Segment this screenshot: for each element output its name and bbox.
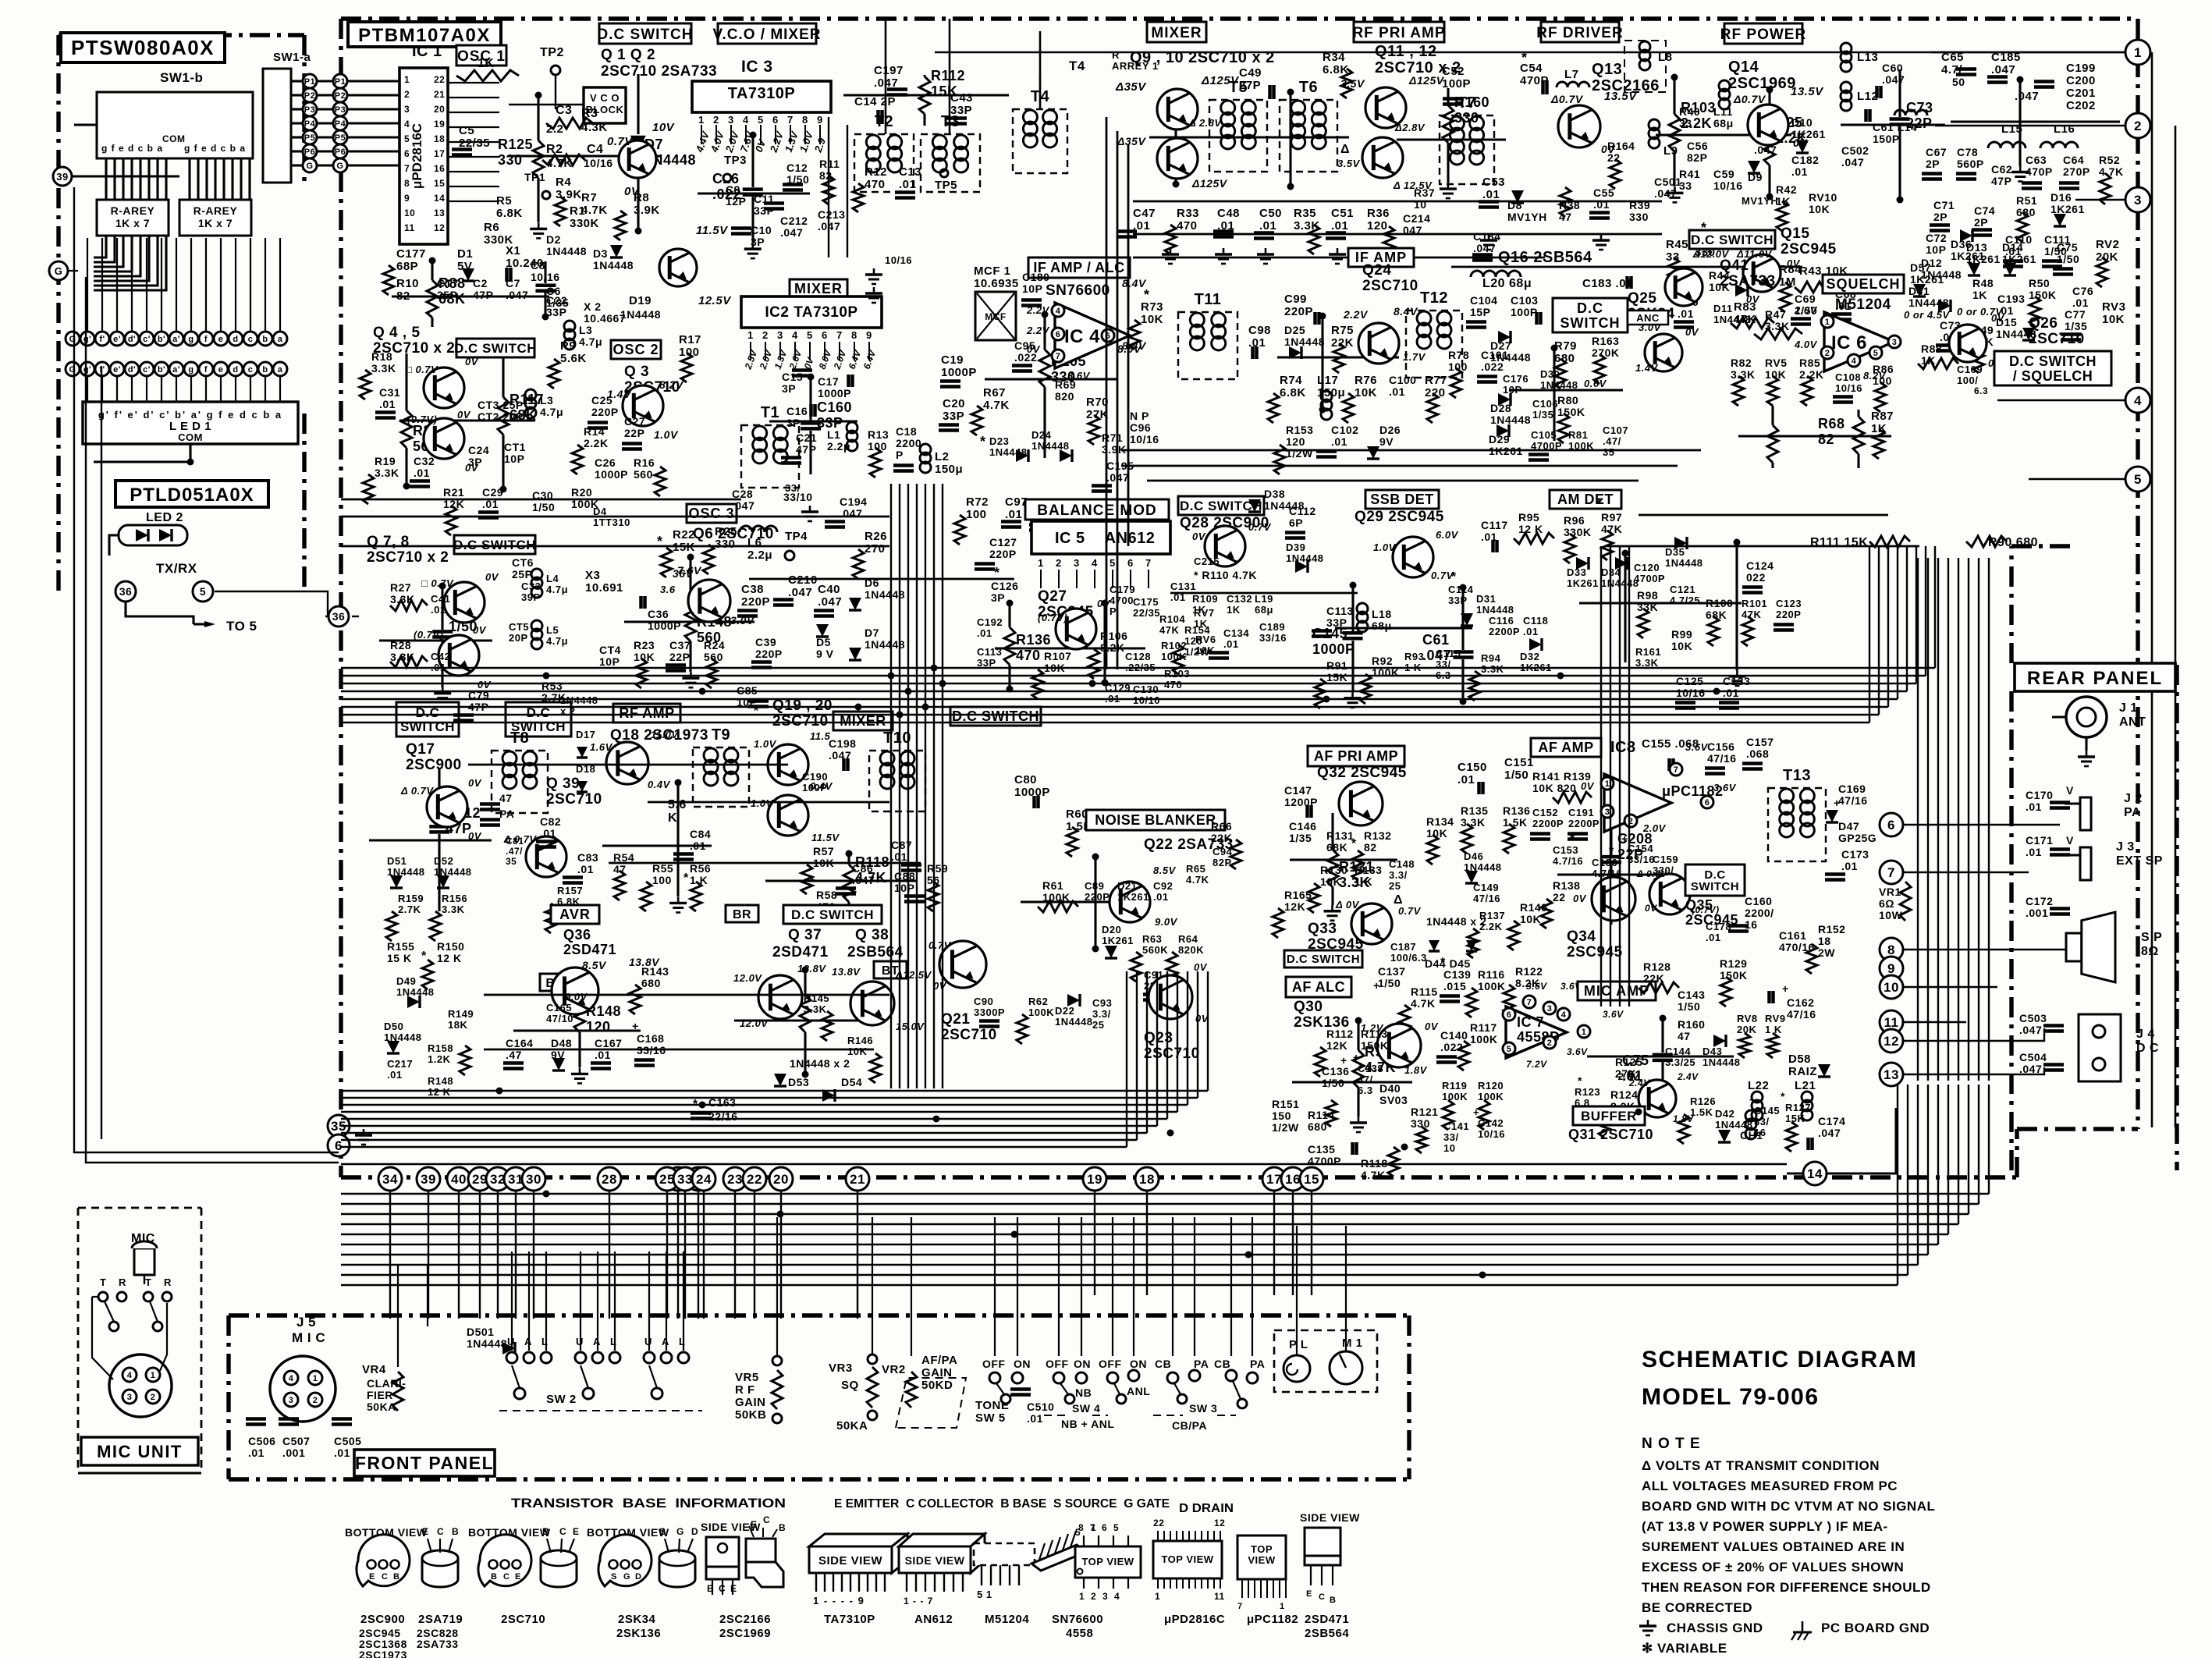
svg-text:R25: R25	[715, 525, 737, 538]
svg-text:4: 4	[1852, 357, 1857, 366]
svg-text:3P: 3P	[991, 591, 1005, 604]
svg-text:C113: C113	[1326, 605, 1354, 617]
svg-text:1.4V: 1.4V	[1635, 362, 1659, 374]
svg-text:50: 50	[1952, 76, 1965, 88]
svg-text:R120: R120	[1478, 1080, 1504, 1092]
svg-text:C60: C60	[1882, 62, 1903, 74]
svg-text:25: 25	[1389, 880, 1401, 892]
svg-text:.047: .047	[2019, 1024, 2042, 1036]
svg-text:R107: R107	[1044, 650, 1071, 662]
svg-text:RF POWER: RF POWER	[1720, 27, 1806, 43]
svg-text:82: 82	[396, 289, 410, 303]
svg-text:Q14: Q14	[1728, 59, 1759, 76]
svg-text:R13: R13	[868, 428, 889, 441]
svg-text:150K: 150K	[1557, 406, 1585, 418]
svg-text:C135: C135	[1308, 1143, 1335, 1156]
svg-text:D.C SWITCH: D.C SWITCH	[453, 538, 536, 552]
svg-text:C14 2P: C14 2P	[854, 95, 896, 108]
svg-text:0V: 0V	[1991, 312, 2005, 324]
svg-text:220P: 220P	[591, 406, 619, 418]
svg-text:R97: R97	[1601, 511, 1622, 524]
svg-text:D16: D16	[2050, 191, 2072, 204]
svg-text:C182: C182	[1791, 154, 1819, 166]
svg-text:.01: .01	[1481, 531, 1497, 543]
svg-text:.047: .047	[788, 586, 812, 599]
svg-text:47K: 47K	[1159, 624, 1179, 636]
svg-text:4700P: 4700P	[1634, 573, 1665, 584]
svg-text:c: c	[248, 365, 254, 375]
svg-text:R155: R155	[387, 940, 414, 953]
svg-text:C115: C115	[1436, 648, 1461, 659]
svg-text:.01: .01	[2005, 245, 2022, 257]
svg-text:P4: P4	[335, 119, 346, 129]
svg-text:Q23: Q23	[1144, 1030, 1173, 1046]
svg-text:330: 330	[1629, 211, 1649, 223]
svg-text:VR2: VR2	[882, 1363, 906, 1376]
svg-text:R128: R128	[1643, 960, 1671, 973]
svg-text:C18: C18	[896, 425, 917, 438]
svg-text:GAIN: GAIN	[735, 1396, 766, 1409]
svg-text:B: B	[542, 1526, 549, 1537]
svg-text:2SC710: 2SC710	[1144, 1046, 1200, 1062]
svg-text:C217: C217	[387, 1058, 413, 1070]
svg-text:L22: L22	[1748, 1079, 1769, 1092]
svg-text:R61: R61	[1042, 879, 1063, 892]
svg-text:8.2V: 8.2V	[659, 378, 684, 391]
svg-text:D30: D30	[1540, 368, 1560, 380]
svg-text:SV03: SV03	[1379, 1094, 1408, 1106]
svg-text:50KD: 50KD	[921, 1379, 953, 1392]
svg-text:C19: C19	[941, 353, 964, 367]
svg-text:D11: D11	[1713, 303, 1733, 314]
svg-text:C109: C109	[1957, 364, 1983, 375]
svg-text:L3: L3	[579, 324, 592, 336]
svg-text:0V: 0V	[1194, 961, 1208, 973]
svg-text:27P: 27P	[1239, 79, 1261, 92]
svg-text:D17: D17	[576, 729, 595, 740]
svg-text:E: E	[369, 1572, 375, 1582]
svg-text:Q34: Q34	[1567, 928, 1596, 945]
svg-text:.47/: .47/	[506, 846, 523, 857]
svg-text:R5: R5	[496, 194, 512, 208]
svg-text:C174: C174	[1818, 1115, 1845, 1127]
svg-text:R80: R80	[1557, 394, 1578, 407]
svg-text:C112: C112	[1289, 505, 1316, 517]
svg-text:CT4: CT4	[599, 644, 621, 656]
svg-text:D49: D49	[396, 975, 416, 987]
svg-text:R100: R100	[1706, 597, 1733, 609]
svg-text:C170: C170	[2026, 789, 2053, 801]
svg-text:2.2μ: 2.2μ	[747, 549, 772, 562]
svg-text:R45: R45	[1666, 238, 1688, 251]
svg-text:4.7K: 4.7K	[581, 204, 608, 217]
svg-text:Δ0.7V: Δ0.7V	[1733, 93, 1766, 105]
svg-text:D.C SWITCH: D.C SWITCH	[1287, 953, 1360, 966]
svg-text:1N4448: 1N4448	[396, 986, 435, 998]
svg-text:R52: R52	[2099, 154, 2120, 166]
svg-text:R66: R66	[1211, 820, 1232, 833]
svg-text:4.7μ: 4.7μ	[546, 584, 568, 595]
svg-text:.01: .01	[387, 1069, 403, 1081]
svg-text:R41: R41	[1679, 168, 1700, 180]
svg-text:12 K: 12 K	[437, 952, 462, 964]
svg-text:P3: P3	[304, 105, 315, 115]
svg-text:6.3: 6.3	[1974, 385, 1988, 396]
svg-text:R94: R94	[1481, 652, 1501, 664]
svg-text:C198: C198	[829, 737, 856, 750]
svg-text:2P: 2P	[1933, 211, 1947, 223]
svg-text:1: 1	[1825, 318, 1830, 327]
svg-text:C113: C113	[977, 646, 1002, 658]
svg-text:R: R	[1112, 49, 1120, 61]
svg-text:X1: X1	[506, 244, 520, 257]
svg-text:R65: R65	[1186, 863, 1205, 875]
svg-text:33P: 33P	[1326, 616, 1347, 629]
svg-text:25: 25	[1092, 1019, 1104, 1031]
svg-text:P3: P3	[335, 105, 346, 115]
svg-text:D47: D47	[1838, 820, 1859, 833]
svg-text:.01: .01	[1389, 385, 1405, 398]
svg-text:R150: R150	[437, 940, 464, 953]
svg-text:d': d'	[128, 335, 136, 344]
svg-text:IC 3: IC 3	[741, 58, 773, 76]
svg-text:6: 6	[772, 114, 779, 126]
svg-text:C165: C165	[546, 1002, 572, 1014]
svg-text:T: T	[100, 1276, 106, 1288]
svg-text:M 1: M 1	[1342, 1337, 1363, 1350]
svg-text:R24: R24	[704, 639, 725, 651]
svg-text:D43: D43	[1702, 1046, 1722, 1057]
svg-text:R68: R68	[1818, 416, 1845, 431]
svg-text:C162: C162	[1787, 996, 1814, 1009]
svg-text:T: T	[145, 1276, 151, 1288]
svg-text:RF PRI AMP: RF PRI AMP	[1352, 25, 1445, 41]
svg-text:.047: .047	[818, 595, 842, 609]
svg-text:R77: R77	[1425, 374, 1447, 387]
svg-text:.01: .01	[334, 1447, 350, 1459]
svg-text:(0.7V): (0.7V)	[407, 414, 437, 425]
svg-text:b': b'	[158, 335, 165, 344]
svg-text:022: 022	[1746, 571, 1766, 584]
svg-text:THEN REASON FOR DIFFERENCE S: THEN REASON FOR DIFFERENCE SHOULD	[1642, 1580, 1931, 1595]
svg-text:TP3: TP3	[724, 154, 747, 167]
svg-text:+: +	[1621, 833, 1628, 845]
svg-text:7: 7	[1674, 765, 1679, 775]
svg-text:S: S	[611, 1572, 617, 1582]
svg-text:2P: 2P	[1926, 158, 1940, 170]
svg-text:150K: 150K	[1720, 969, 1747, 982]
svg-text:13: 13	[1884, 1067, 1899, 1082]
svg-text:C184: C184	[1473, 230, 1500, 243]
svg-text:D25: D25	[1284, 324, 1305, 336]
svg-text:1: 1	[313, 1374, 318, 1383]
svg-text:T8: T8	[510, 730, 529, 747]
svg-text:1N4448: 1N4448	[1286, 552, 1324, 564]
svg-text:100K: 100K	[1470, 1033, 1497, 1046]
svg-text:820K: 820K	[1178, 944, 1204, 956]
svg-text:R85: R85	[1799, 357, 1820, 369]
svg-text:COM: COM	[162, 133, 186, 144]
svg-text:3.5V: 3.5V	[1340, 77, 1365, 90]
svg-text:30: 30	[526, 1172, 541, 1187]
svg-text:4: 4	[743, 114, 749, 126]
svg-text:.01: .01	[431, 604, 446, 616]
svg-text:G: G	[623, 1572, 630, 1582]
svg-text:C104: C104	[1470, 294, 1497, 307]
svg-text:T11: T11	[1195, 291, 1222, 308]
svg-text:1: 1	[698, 114, 705, 126]
svg-text:SIDE VIEW: SIDE VIEW	[905, 1554, 965, 1567]
svg-text:TOP VIEW: TOP VIEW	[1081, 1556, 1134, 1567]
svg-text:2SC2166: 2SC2166	[719, 1613, 771, 1626]
svg-text:2.7K: 2.7K	[398, 904, 421, 915]
svg-text:8.4V: 8.4V	[1122, 277, 1147, 289]
svg-text:1.5K: 1.5K	[1503, 816, 1528, 829]
svg-text:SN76600: SN76600	[1052, 1613, 1103, 1626]
svg-text:μPD2816C: μPD2816C	[1164, 1613, 1225, 1626]
svg-text:7: 7	[836, 329, 843, 341]
svg-text:C502: C502	[1841, 144, 1869, 157]
svg-text:C81: C81	[506, 836, 524, 847]
svg-text:R106: R106	[1100, 630, 1127, 642]
svg-text:330K: 330K	[570, 217, 599, 230]
svg-text:EXT SP: EXT SP	[2116, 854, 2163, 868]
svg-text:C5: C5	[459, 124, 474, 137]
svg-text:15K: 15K	[673, 541, 695, 554]
svg-text:Q30: Q30	[1294, 999, 1323, 1015]
svg-text:2: 2	[713, 114, 719, 126]
svg-text:R81: R81	[1568, 429, 1588, 441]
svg-text:C21: C21	[796, 431, 817, 444]
svg-text:EXCESS OF ± 20% OF VALUES: EXCESS OF ± 20% OF VALUES SHOWN	[1642, 1560, 1904, 1575]
svg-text:47/16: 47/16	[1838, 794, 1868, 807]
svg-text:D21: D21	[1117, 880, 1137, 892]
svg-text:R146: R146	[847, 1035, 873, 1046]
svg-text:13.5V: 13.5V	[1791, 85, 1824, 98]
svg-text:12: 12	[434, 222, 445, 233]
svg-text:VR5: VR5	[735, 1371, 759, 1384]
svg-text:SSB DET: SSB DET	[1370, 492, 1434, 507]
svg-text:C69: C69	[1795, 293, 1816, 305]
svg-text:OSC 2: OSC 2	[612, 342, 659, 357]
svg-text:28: 28	[602, 1172, 617, 1187]
svg-text:d: d	[233, 335, 238, 344]
svg-text:D51: D51	[387, 855, 407, 867]
svg-text:SW 2: SW 2	[546, 1393, 577, 1406]
svg-text:C143: C143	[1678, 989, 1705, 1001]
svg-text:3: 3	[1605, 808, 1610, 817]
svg-text:2: 2	[1825, 349, 1830, 358]
svg-text:11: 11	[404, 222, 415, 233]
svg-text:.01: .01	[1259, 219, 1276, 233]
svg-text:CT7: CT7	[437, 277, 459, 289]
svg-text:17: 17	[1266, 1172, 1282, 1187]
svg-text:C142: C142	[1478, 1117, 1504, 1129]
svg-text:R115: R115	[1411, 985, 1438, 998]
svg-text:C106: C106	[1532, 398, 1558, 410]
svg-text:*: *	[810, 876, 815, 889]
svg-text:1/50: 1/50	[1678, 1000, 1700, 1013]
svg-text:L: L	[610, 1336, 616, 1347]
svg-text:OFF: OFF	[1046, 1358, 1069, 1370]
svg-text:.068: .068	[1746, 747, 1769, 760]
svg-text:14: 14	[1807, 1166, 1823, 1181]
svg-text:0V: 0V	[457, 409, 471, 421]
svg-text:0.7V: 0.7V	[1248, 521, 1272, 533]
svg-text:560: 560	[634, 468, 653, 481]
svg-text:T7: T7	[1458, 94, 1476, 112]
svg-text:C114: C114	[1448, 584, 1474, 595]
svg-text:1K261: 1K261	[1951, 250, 1985, 262]
svg-text:C93: C93	[1092, 997, 1112, 1009]
svg-text:b: b	[262, 335, 268, 344]
svg-text:RAIZ: RAIZ	[1788, 1065, 1817, 1078]
svg-text:1/35: 1/35	[1289, 832, 1312, 844]
svg-text:C83: C83	[577, 851, 598, 864]
svg-text:C503: C503	[2019, 1012, 2047, 1024]
svg-text:C171: C171	[2026, 834, 2053, 847]
svg-text:4.7K: 4.7K	[1361, 1169, 1386, 1181]
svg-text:R78: R78	[1448, 349, 1469, 361]
svg-text:PC BOARD GND: PC BOARD GND	[1821, 1621, 1930, 1635]
svg-text:C117: C117	[1481, 519, 1508, 531]
svg-text:3.5V: 3.5V	[1337, 158, 1361, 169]
svg-text:BR: BR	[733, 908, 751, 921]
svg-text:1N4448: 1N4448	[1055, 1016, 1093, 1028]
svg-text:R11: R11	[819, 158, 840, 170]
svg-text:11: 11	[1214, 1591, 1225, 1602]
svg-text:5: 5	[807, 329, 813, 341]
svg-text:R101: R101	[1742, 598, 1767, 609]
svg-text:*: *	[1578, 1074, 1582, 1087]
svg-text:47P: 47P	[473, 289, 493, 301]
svg-text:R96: R96	[1564, 514, 1585, 527]
svg-text:0V: 0V	[1601, 143, 1616, 155]
svg-text:330K: 330K	[1564, 526, 1591, 538]
svg-text:R67: R67	[983, 386, 1006, 399]
svg-text:D38: D38	[1264, 488, 1285, 500]
svg-text:2SA719: 2SA719	[418, 1613, 463, 1626]
svg-text:7: 7	[1887, 865, 1895, 880]
svg-text:SIDE VIEW: SIDE VIEW	[818, 1554, 882, 1567]
svg-text:20: 20	[434, 104, 445, 115]
svg-text:1: 1	[1605, 779, 1610, 789]
svg-text:SQUELCH: SQUELCH	[1826, 276, 1900, 292]
svg-text:22P: 22P	[624, 427, 644, 439]
svg-text:C64: C64	[2063, 154, 2084, 166]
svg-text:GP25G: GP25G	[1838, 832, 1876, 844]
svg-text:MV1YH: MV1YH	[1742, 195, 1778, 207]
svg-text:C161: C161	[1779, 929, 1806, 942]
svg-text:120: 120	[1367, 219, 1388, 233]
svg-text:100K: 100K	[1442, 1091, 1468, 1102]
svg-text:L17: L17	[1317, 374, 1338, 387]
svg-text:1.6V: 1.6V	[590, 741, 613, 753]
svg-text:15P: 15P	[1470, 306, 1490, 318]
svg-text:33P: 33P	[1448, 595, 1468, 606]
svg-text:100: 100	[868, 440, 887, 453]
svg-text:X3: X3	[585, 569, 600, 582]
svg-text:T6: T6	[1299, 79, 1318, 96]
svg-text:C172: C172	[2026, 895, 2053, 907]
svg-text:R: R	[119, 1276, 126, 1288]
svg-text:R136: R136	[1016, 632, 1051, 648]
svg-text:D31: D31	[1476, 593, 1496, 605]
svg-text:C212: C212	[780, 215, 808, 227]
svg-text:AN612: AN612	[1105, 530, 1156, 547]
svg-text:R138: R138	[1553, 879, 1580, 892]
svg-text:R156: R156	[442, 893, 467, 904]
svg-text:10P: 10P	[504, 453, 524, 465]
svg-text:R135: R135	[1461, 804, 1488, 817]
svg-text:C25: C25	[591, 394, 612, 407]
svg-text:A: A	[593, 1336, 601, 1347]
svg-text:680: 680	[641, 977, 661, 989]
svg-text:R125: R125	[498, 137, 533, 152]
svg-text:R130: R130	[1320, 864, 1347, 876]
svg-text:6: 6	[1056, 330, 1061, 339]
svg-text:C164: C164	[506, 1037, 533, 1049]
svg-text:R4: R4	[556, 176, 571, 189]
svg-text:C183 .01: C183 .01	[1582, 277, 1633, 290]
svg-text:9V: 9V	[1379, 435, 1394, 448]
svg-text:C139: C139	[1443, 968, 1471, 981]
svg-text:1/50: 1/50	[532, 501, 555, 513]
svg-text:8 7 6 5: 8 7 6 5	[1078, 1522, 1120, 1533]
svg-text:C29: C29	[482, 486, 503, 499]
svg-text:R28: R28	[390, 639, 411, 651]
svg-text:R157: R157	[557, 885, 583, 896]
svg-text:C200: C200	[2066, 74, 2096, 87]
svg-text:K: K	[668, 811, 677, 825]
svg-text:ALL VOLTAGES MEASURED FROM PC: ALL VOLTAGES MEASURED FROM PC	[1642, 1479, 1898, 1493]
svg-text:50KB: 50KB	[735, 1408, 766, 1422]
svg-text:MODEL 79-006: MODEL 79-006	[1642, 1384, 1820, 1410]
svg-text:BOARD GND WITH DC VTVM AT NO: BOARD GND WITH DC VTVM AT NO SIGNAL	[1642, 1499, 1935, 1514]
svg-text:IC 6: IC 6	[1831, 332, 1867, 353]
svg-text:C195: C195	[1106, 460, 1134, 472]
svg-text:.047: .047	[1473, 242, 1496, 254]
svg-text:RV9: RV9	[1765, 1013, 1786, 1024]
svg-text:S P: S P	[2141, 931, 2162, 944]
svg-text:COM: COM	[178, 431, 203, 443]
svg-text:4700P: 4700P	[1531, 440, 1562, 452]
svg-text:C121: C121	[1670, 584, 1695, 595]
svg-text:5: 5	[2134, 472, 2142, 487]
svg-text:R10: R10	[396, 277, 419, 290]
svg-text:R125: R125	[1615, 1056, 1642, 1068]
svg-text:R99: R99	[1671, 628, 1692, 641]
svg-text:0V: 0V	[1573, 893, 1587, 904]
svg-text:.047: .047	[852, 874, 875, 886]
svg-text:C: C	[437, 1526, 444, 1537]
svg-text:C194: C194	[840, 495, 867, 508]
svg-text:10V: 10V	[652, 121, 676, 134]
svg-text:a: a	[278, 335, 283, 344]
svg-text:10/16: 10/16	[1835, 382, 1862, 394]
svg-text:0V: 0V	[468, 830, 482, 842]
svg-text:0 or 4.5V: 0 or 4.5V	[1904, 309, 1951, 321]
svg-text:0V: 0V	[1581, 780, 1595, 792]
svg-text:270: 270	[865, 542, 886, 556]
svg-text:R63: R63	[1142, 933, 1162, 945]
svg-text:T9: T9	[712, 726, 730, 744]
svg-text:2SC1969: 2SC1969	[1728, 75, 1796, 92]
svg-text:CB: CB	[1214, 1358, 1230, 1370]
svg-text:12.0V: 12.0V	[733, 972, 762, 984]
svg-text:22: 22	[747, 1172, 762, 1187]
svg-text:3: 3	[1892, 338, 1898, 347]
